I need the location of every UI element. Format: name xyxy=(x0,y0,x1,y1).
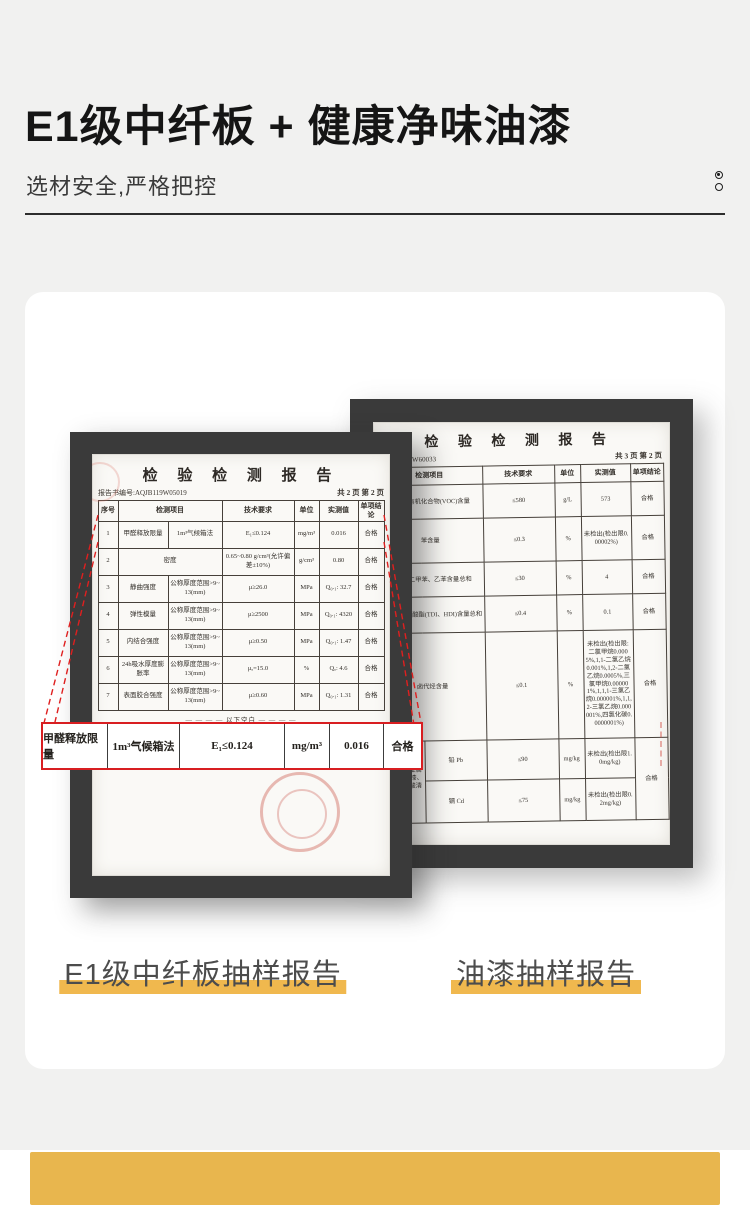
highlight-cell-unit: mg/m³ xyxy=(285,724,330,768)
carousel-dot-active-icon[interactable] xyxy=(715,171,723,179)
header-divider xyxy=(25,213,725,215)
table-row: 2 密度 0.65~0.80 g/cm³(允许偏差±10%) g/cm³ 0.8… xyxy=(98,548,384,575)
left-report-page-info: 共 2 页 第 2 页 xyxy=(337,487,384,498)
right-report-table: 检测项目 技术要求 单位 实测值 单项结论 挥发性有机化合物(VOC)含量 ≤5… xyxy=(376,463,670,824)
report-frame-left: 检 验 检 测 报 告 报告书编号:AQJB119W05019 共 2 页 第 … xyxy=(70,432,412,898)
product-detail-section: E1级中纤板 + 健康净味油漆 选材安全,严格把控 检 验 检 测 报 告 号:… xyxy=(0,0,750,1211)
highlight-cell-value: 0.016 xyxy=(330,724,384,768)
table-row: 5 内结合强度 公称厚度范围>9~13(mm) μ≥0.50 MPa Q₀.₁:… xyxy=(98,629,384,656)
right-report-title: 检 验 检 测 报 告 xyxy=(373,428,668,453)
left-report-paper: 检 验 检 测 报 告 报告书编号:AQJB119W05019 共 2 页 第 … xyxy=(92,454,390,876)
highlight-cell-item: 甲醛释放限量 xyxy=(43,724,108,768)
table-row: 甲苯、二甲苯、乙苯含量总和 ≤30 % 4 合格 xyxy=(378,559,665,598)
table-row: 3 静曲强度 公称厚度范围>9~13(mm) μ≥26.0 MPa Q₀.₁: … xyxy=(98,575,384,602)
table-row: 6 24h吸水厚度膨胀率 公称厚度范围>9~13(mm) μₐ=15.0 % Q… xyxy=(98,656,384,683)
table-row: 苯含量 ≤0.3 % 未检出(检出限0.00002%) 合格 xyxy=(377,515,665,564)
caption-right-report: 油漆抽样报告 xyxy=(451,951,641,993)
table-row: 可溶性重金属含量(限色漆、腻子和醇酸清漆) 铅 Pb ≤90 mg/kg 未检出… xyxy=(380,737,668,782)
bottom-accent-bar xyxy=(30,1152,720,1205)
table-row: 游离二异氰酸酯(TDI、HDI)含量总和 ≤0.4 % 0.1 合格 xyxy=(378,593,666,634)
red-annotation-mark xyxy=(660,722,662,766)
carousel-dot-icon[interactable] xyxy=(715,183,723,191)
red-stamp-seal xyxy=(260,772,340,852)
table-row: 7 表面胶合强度 公称厚度范围>9~13(mm) μ≥0.60 MPa Q₀.₁… xyxy=(98,683,384,710)
table-row: 挥发性有机化合物(VOC)含量 ≤580 g/L 573 合格 xyxy=(376,481,663,520)
table-row: 1 甲醛释放限量 1m³气候箱法 E₁≤0.124 mg/m³ 0.016 合格 xyxy=(98,521,384,548)
formaldehyde-highlight-row: 甲醛释放限量 1m³气候箱法 E₁≤0.124 mg/m³ 0.016 合格 xyxy=(41,722,423,770)
section-title: E1级中纤板 + 健康净味油漆 xyxy=(25,92,725,154)
right-report-paper: 检 验 检 测 报 告 号:ASHA22W60033 共 3 页 第 2 页 检… xyxy=(373,422,670,845)
caption-left-report: E1级中纤板抽样报告 xyxy=(59,951,346,993)
highlight-cell-method: 1m³气候箱法 xyxy=(108,724,180,768)
highlight-cell-result: 合格 xyxy=(384,724,421,768)
left-report-title: 检 验 检 测 报 告 xyxy=(92,464,390,485)
left-report-table: 序号 检测项目 技术要求 单位 实测值 单项结论 1 甲醛释放限量 1m³气候箱… xyxy=(98,500,385,711)
table-row: 4 弹性模量 公称厚度范围>9~13(mm) μ≥2500 MPa Q₀.₁: … xyxy=(98,602,384,629)
section-subtitle: 选材安全,严格把控 xyxy=(26,169,217,201)
highlight-cell-req: E₁≤0.124 xyxy=(180,724,285,768)
carousel-dots[interactable] xyxy=(715,171,727,195)
right-report-page-info: 共 3 页 第 2 页 xyxy=(615,450,662,462)
